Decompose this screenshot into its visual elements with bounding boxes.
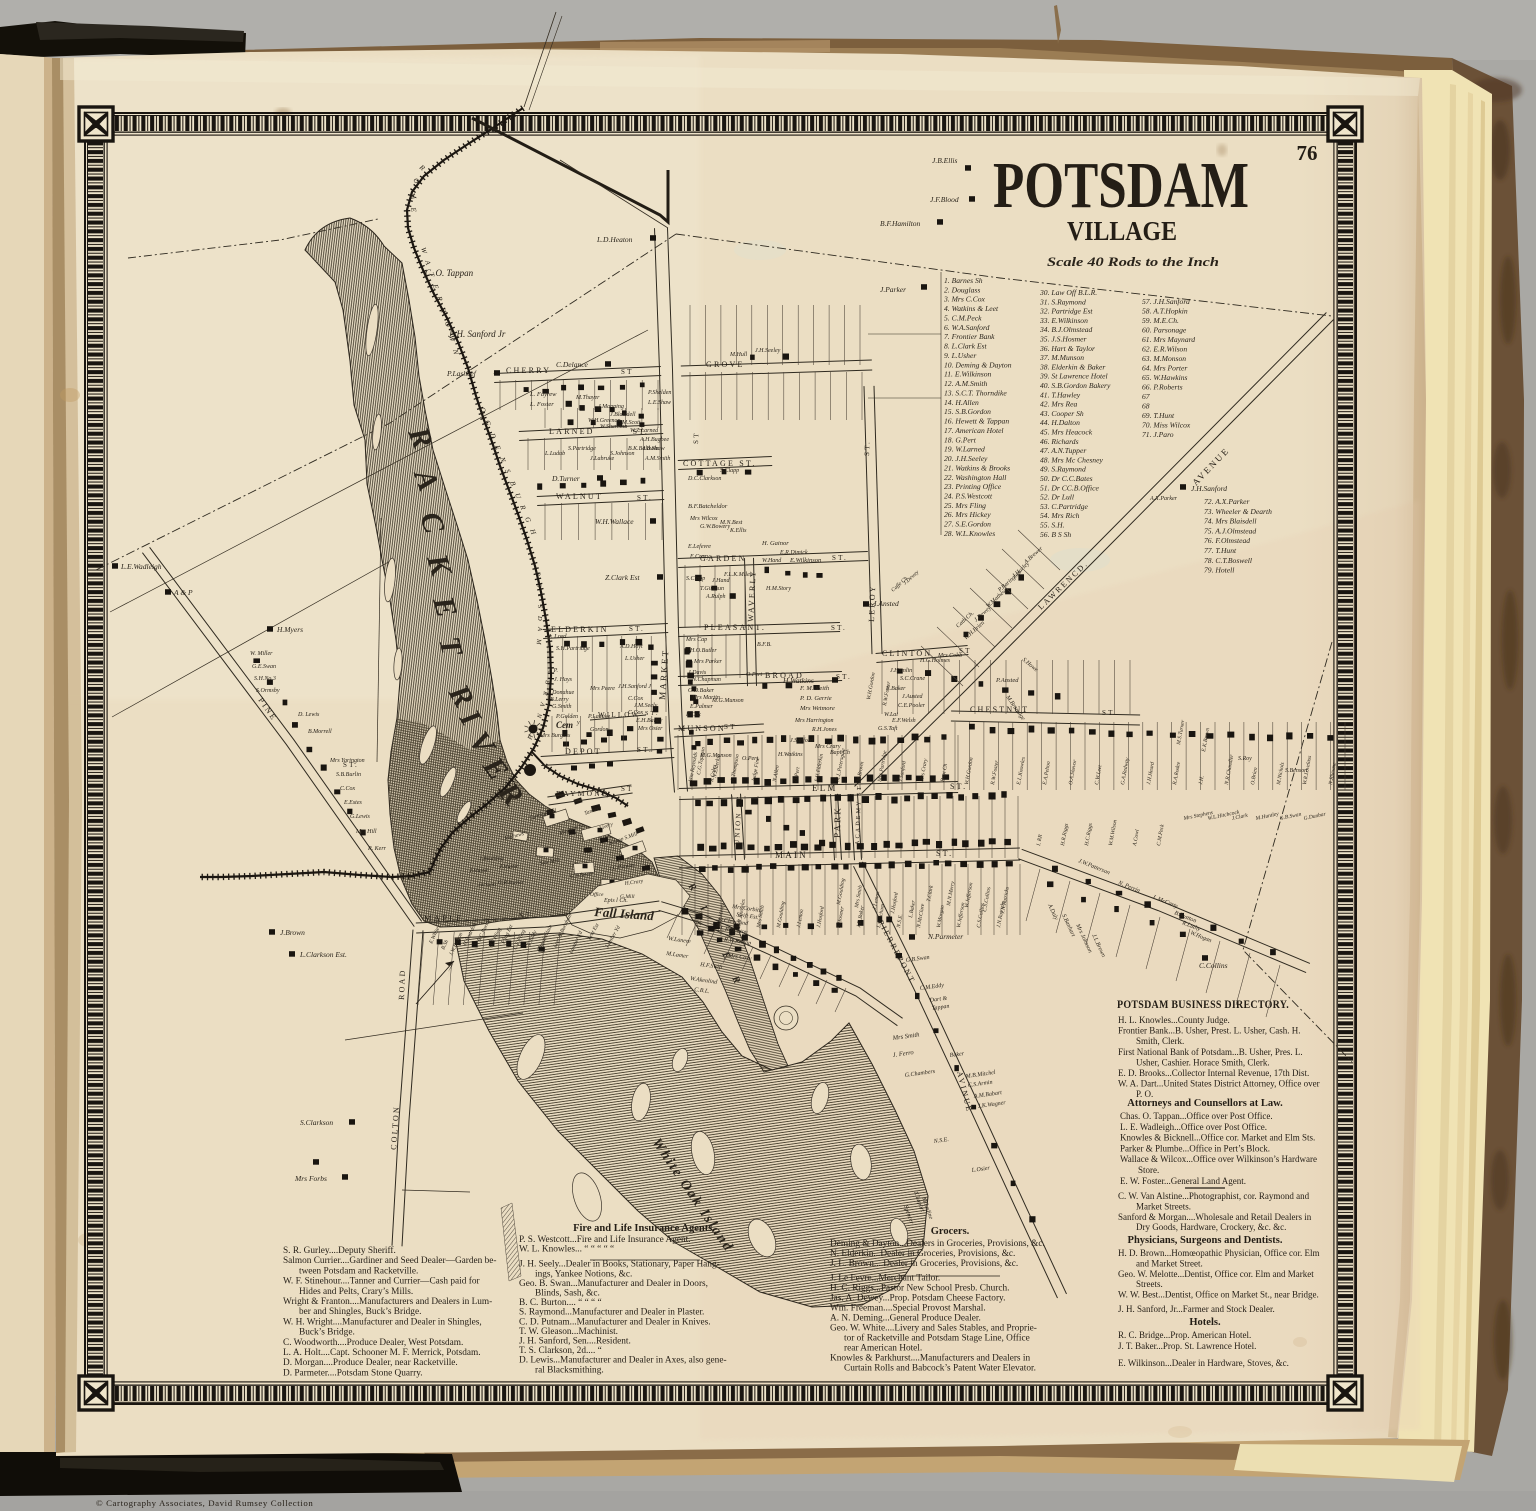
svg-text:B.Lerry: B.Lerry [550,697,569,703]
svg-text:Blinds, Sash, &c.: Blinds, Sash, &c. [535,1289,600,1299]
svg-text:54. Mrs Rich: 54. Mrs Rich [1040,511,1080,520]
svg-text:Mrs Burgess: Mrs Burgess [539,733,571,739]
svg-text:22. Washington Hall: 22. Washington Hall [944,473,1006,482]
svg-text:R. C. Bridge...Prop. American: R. C. Bridge...Prop. American Hotel. [1118,1330,1251,1340]
svg-text:E. D. Brooks...Collector Inter: E. D. Brooks...Collector Internal Revenu… [1118,1068,1309,1078]
svg-text:S. Raymond...Manufacturer and: S. Raymond...Manufacturer and Dealer in … [519,1307,704,1318]
svg-text:M.G.Munson: M.G.Munson [711,698,744,704]
svg-text:72. A.X.Parker: 72. A.X.Parker [1204,497,1249,506]
svg-text:H.Myers: H.Myers [276,625,303,634]
svg-text:M: M [535,638,542,645]
svg-text:69. T.Hunt: 69. T.Hunt [1142,411,1175,420]
svg-text:E.R.Dimick: E.R.Dimick [779,550,808,556]
svg-text:Jas. A. Dewey...Prop. Potsdam: Jas. A. Dewey...Prop. Potsdam Cheese Fac… [830,1294,1005,1304]
svg-text:CLINTON: CLINTON [882,649,932,658]
svg-text:L.D.Heaton: L.D.Heaton [596,235,633,244]
svg-text:© Cartography Associates, Davi: © Cartography Associates, David Rumsey C… [96,1498,313,1508]
svg-text:S.Ormsby: S.Ormsby [256,688,280,694]
svg-text:B.F.Hamilton: B.F.Hamilton [880,219,921,228]
svg-text:Fire and Life Insurance Agents: Fire and Life Insurance Agents. [573,1223,715,1234]
svg-text:COTTAGE ST.: COTTAGE ST. [683,459,757,468]
svg-text:J. Hays: J. Hays [554,677,573,683]
svg-text:J.Parker: J.Parker [880,285,906,294]
svg-text:E.Estes: E.Estes [343,800,362,806]
svg-text:W.H.Wallace: W.H.Wallace [595,517,634,526]
svg-text:First National Bank of Potsdam: First National Bank of Potsdam...B. Ushe… [1118,1047,1303,1057]
svg-text:B. C. Burton.... “: B. C. Burton.... “ “ “ “ [519,1298,602,1308]
svg-text:CHERRY: CHERRY [506,366,551,375]
svg-text:H. L. Knowles...County Judge.: H. L. Knowles...County Judge. [1118,1015,1230,1025]
svg-text:J.Donahue: J.Donahue [548,690,574,696]
svg-text:S.Clapp: S.Clapp [686,576,705,582]
svg-text:W. H. Wright....Manufacturer a: W. H. Wright....Manufacturer and Dealer … [283,1316,482,1327]
svg-text:M.N.Best: M.N.Best [719,520,743,526]
svg-text:ber and Shingles, Buck’s Bridg: ber and Shingles, Buck’s Bridge. [299,1307,421,1317]
svg-text:S. R. Gurley....Deputy Sheriff: S. R. Gurley....Deputy Sheriff. [283,1245,396,1256]
svg-text:LEROY: LEROY [867,584,877,622]
svg-text:P.Lasheef: P.Lasheef [446,369,477,378]
svg-text:Scale 40 Rods to the Inch: Scale 40 Rods to the Inch [1047,254,1219,269]
svg-text:73. Wheeler & Dearth: 73. Wheeler & Dearth [1204,507,1272,516]
svg-text:21. Watkins & Brooks: 21. Watkins & Brooks [944,463,1010,472]
svg-text:D: D [536,615,543,621]
svg-text:G.E.Swan: G.E.Swan [252,664,276,670]
svg-text:76: 76 [1297,141,1318,165]
svg-text:J.F.Blood: J.F.Blood [930,195,959,204]
svg-text:L.E.Wadleigh: L.E.Wadleigh [120,562,162,571]
svg-text:51. Dr CC.B.Office: 51. Dr CC.B.Office [1040,483,1099,492]
svg-text:48. Mrs Mc Chesney: 48. Mrs Mc Chesney [1040,455,1103,464]
svg-text:C. O. Tappan: C. O. Tappan [425,268,474,278]
svg-text:20. J.H.Seeley: 20. J.H.Seeley [944,454,988,463]
svg-text:79. Hotell: 79. Hotell [1204,566,1234,575]
svg-text:ST: ST [724,723,737,731]
svg-text:Deming & Dayton...Dealers in G: Deming & Dayton...Dealers in Groceries, … [830,1239,1045,1249]
svg-text:P.Shelden: P.Shelden [647,390,671,396]
svg-text:F. M. Keith: F. M. Keith [799,685,829,692]
svg-text:Epis l Ch.: Epis l Ch. [603,898,628,904]
svg-text:Parker & Plumbe...Office in Pe: Parker & Plumbe...Office in Pert’s Block… [1120,1143,1270,1153]
svg-text:S.Partridge: S.Partridge [568,446,596,452]
svg-text:A.D.Hoyt: A.D.Hoyt [619,644,643,650]
svg-text:ST: ST [692,431,700,444]
svg-text:G.Lewis: G.Lewis [350,814,371,820]
svg-text:GROVE: GROVE [706,360,745,369]
svg-text:34. B.J.Olmstead: 34. B.J.Olmstead [1039,325,1093,334]
svg-text:ELM: ELM [812,783,838,793]
svg-text:R.H.Jones: R.H.Jones [811,727,837,733]
svg-text:G.B.Barnes: G.B.Barnes [498,880,524,886]
svg-text:70. Miss Wilcox: 70. Miss Wilcox [1142,421,1191,430]
svg-text:23. Printing Office: 23. Printing Office [944,482,1002,491]
svg-text:Mrs Cobb: Mrs Cobb [937,653,962,659]
svg-text:ST.: ST. [629,625,645,633]
svg-text:Mrs Hill: Mrs Hill [355,829,377,835]
svg-text:18. G.Pert: 18. G.Pert [944,435,977,444]
svg-text:28. W.L.Knowles: 28. W.L.Knowles [944,529,995,538]
svg-text:53. C.Partridge: 53. C.Partridge [1040,502,1089,511]
svg-text:rear American Hotel.: rear American Hotel. [844,1344,922,1354]
svg-text:P.Laduke: P.Laduke [587,714,610,720]
svg-text:MAIN: MAIN [775,850,808,860]
svg-text:Dry Goods, Hardware, Crockery,: Dry Goods, Hardware, Crockery, &c. &c. [1136,1222,1286,1232]
svg-text:J. P.: J. P. [548,668,558,674]
svg-text:P. D. Gerrie: P. D. Gerrie [799,695,832,702]
svg-text:S.Roy: S.Roy [1238,756,1252,762]
svg-text:PARK: PARK [832,806,843,838]
svg-text:Streets.: Streets. [1136,1279,1163,1289]
svg-text:ST: ST [621,785,634,793]
svg-text:P. S. Westcott...Fire and Life: P. S. Westcott...Fire and Life Insurance… [519,1234,691,1245]
svg-text:J.Sanford: J.Sanford [790,737,814,744]
svg-text:31. S.Raymond: 31. S.Raymond [1039,297,1086,306]
svg-text:D.Turner: D.Turner [551,474,580,483]
svg-text:10. Deming & Dayton: 10. Deming & Dayton [944,360,1012,369]
svg-text:H.Watkins: H.Watkins [777,752,803,758]
svg-text:Grocers.: Grocers. [931,1226,970,1237]
svg-text:POTSDAM: POTSDAM [993,149,1249,222]
svg-text:55. S.H.: 55. S.H. [1040,521,1065,530]
svg-text:C.Delance: C.Delance [556,360,589,369]
svg-text:Mrs Peere: Mrs Peere [589,686,615,692]
svg-text:A.H.Bugbee: A.H.Bugbee [639,437,669,443]
svg-text:W. W. Best...Dentist, Office o: W. W. Best...Dentist, Office on Market S… [1118,1290,1319,1300]
svg-text:Attorneys and Counsellors at L: Attorneys and Counsellors at Law. [1127,1098,1283,1109]
svg-text:H.O.Butler: H.O.Butler [689,648,717,654]
svg-text:ROAD: ROAD [397,968,407,1000]
svg-text:42. Mrs Rea: 42. Mrs Rea [1040,400,1078,409]
svg-text:O.D.Baker: O.D.Baker [688,688,715,694]
svg-text:F.L.K.Miles: F.L.K.Miles [723,572,753,578]
svg-text:14. H.Allen: 14. H.Allen [944,398,979,407]
svg-text:L. Foster: L. Foster [529,401,554,408]
svg-text:W. A. Dart...United States Dis: W. A. Dart...United States District Atto… [1118,1079,1320,1089]
svg-text:40. S.B.Gordon Bakery: 40. S.B.Gordon Bakery [1040,381,1111,390]
svg-text:MUNSON: MUNSON [678,724,726,733]
svg-text:I.Mutter: I.Mutter [499,864,519,870]
svg-text:43. Cooper Sh: 43. Cooper Sh [1040,409,1084,418]
svg-text:19. W.Larned: 19. W.Larned [944,445,985,454]
svg-text:9. L.Usher: 9. L.Usher [944,351,976,360]
svg-text:41. T.Hawley: 41. T.Hawley [1040,390,1081,399]
svg-text:E. W. Foster...General Land Ag: E. W. Foster...General Land Agent. [1120,1176,1246,1186]
svg-text:ST.: ST. [637,494,653,502]
svg-text:Wallace & Wilcox...Office ov: Wallace & Wilcox...Office over Wilkinson… [1120,1154,1317,1164]
svg-text:W.H.Greenan: W.H.Greenan [588,418,621,424]
svg-text:Geo. B. Swan...Manufacturer: Geo. B. Swan...Manufacturer and Dealer i… [519,1278,708,1289]
svg-text:A. N. Deming...General Produce: A. N. Deming...General Produce Dealer. [830,1314,981,1324]
svg-text:WALNUT: WALNUT [556,492,603,501]
svg-text:Store.: Store. [1138,1165,1159,1175]
svg-text:L.Usher: L.Usher [624,656,645,662]
svg-text:L. Fayrew: L. Fayrew [529,391,557,398]
svg-text:7. Frontier Bank: 7. Frontier Bank [944,332,995,341]
svg-text:Wright & Franton....Manufactur: Wright & Franton....Manufacturers and De… [283,1296,492,1307]
svg-text:W.Z.Larned: W.Z.Larned [630,428,659,434]
svg-text:E. Wilkinson...Dealer in Hardw: E. Wilkinson...Dealer in Hardware, Stove… [1118,1358,1289,1368]
svg-text:VILLAGE: VILLAGE [1067,216,1177,246]
svg-text:68: 68 [1142,402,1150,411]
svg-text:P.Golden: P.Golden [555,714,578,720]
svg-text:36. Hart & Taylor: 36. Hart & Taylor [1039,344,1095,353]
svg-text:P.Ansted: P.Ansted [995,677,1019,684]
svg-text:33. E.Wilkinson: 33. E.Wilkinson [1039,316,1088,325]
svg-text:Mrs Wilcox: Mrs Wilcox [689,516,718,522]
svg-text:A & P: A & P [173,588,193,597]
svg-text:D.C.Clarkson: D.C.Clarkson [687,476,721,482]
svg-text:ST: ST [621,368,634,376]
svg-text:C.E.Pooler: C.E.Pooler [898,703,926,709]
svg-text:11. E.Wilkinson: 11. E.Wilkinson [944,370,992,379]
svg-text:3. Mrs C.Cox: 3. Mrs C.Cox [943,295,986,304]
svg-text:D. Lewis: D. Lewis [297,712,320,718]
svg-text:T.Girusun: T.Girusun [700,586,724,592]
svg-text:L.Ludub: L.Ludub [544,451,565,457]
svg-text:O: O [535,583,542,588]
svg-text:67: 67 [1142,392,1151,401]
svg-text:L. E. Wadleigh...Office over: L. E. Wadleigh...Office over Post Office… [1120,1122,1267,1132]
svg-text:RAYMOND: RAYMOND [556,789,609,798]
svg-text:2. Douglass: 2. Douglass [944,285,980,294]
svg-text:Mrs Forbs: Mrs Forbs [294,1174,327,1183]
svg-text:D. Morgan....Produce Dealer, n: D. Morgan....Produce Dealer, near Racket… [283,1358,458,1368]
svg-text:76. F.Olmstead: 76. F.Olmstead [1204,536,1250,545]
svg-text:J. L. Brown....Dealer in Groce: J. L. Brown....Dealer in Groceries, Prov… [830,1259,1018,1269]
svg-text:S.H.No 3: S.H.No 3 [254,676,276,682]
svg-text:5. C.M.Peck: 5. C.M.Peck [944,314,982,323]
svg-text:A.Rulph: A.Rulph [705,594,726,600]
svg-text:K.Ellis: K.Ellis [729,528,747,534]
svg-text:35. J.S.Hosmer: 35. J.S.Hosmer [1039,335,1086,344]
svg-text:ST: ST [1102,709,1115,717]
svg-text:T: T [536,594,543,598]
svg-text:66. P.Roberts: 66. P.Roberts [1142,383,1183,392]
svg-text:J.M.Seely: J.M.Seely [634,703,658,709]
svg-text:Wm. Freeman....Special Provost: Wm. Freeman....Special Provost Marshal. [830,1304,986,1314]
svg-text:32. Partridge Est: 32. Partridge Est [1039,307,1093,316]
svg-text:65. W.Hawkins: 65. W.Hawkins [1142,373,1188,382]
svg-text:52. Dr Lull: 52. Dr Lull [1040,493,1074,502]
svg-text:17. American Hotel: 17. American Hotel [944,426,1004,435]
svg-text:B.F.B.: B.F.B. [757,642,772,648]
svg-text:T. W. Gleason...Machinist.: T. W. Gleason...Machinist. [519,1327,618,1337]
svg-text:L.E.Shaw: L.E.Shaw [647,400,671,406]
svg-text:38. Elderkin & Baker: 38. Elderkin & Baker [1039,362,1105,371]
svg-text:S.B.Burlin: S.B.Burlin [336,772,361,778]
svg-text:G.S.Taft: G.S.Taft [878,725,898,732]
svg-text:25. Mrs Fling: 25. Mrs Fling [944,501,986,510]
svg-text:I.B.Shaw: I.B.Shaw [642,446,665,452]
svg-text:47. A.N.Tupper: 47. A.N.Tupper [1040,446,1086,455]
svg-text:W. Miller: W. Miller [250,651,273,657]
svg-text:27. S.E.Gordon: 27. S.E.Gordon [944,520,991,529]
svg-text:S.H.Partridge: S.H.Partridge [556,646,590,652]
svg-text:J.Manning: J.Manning [598,404,624,410]
svg-text:DEPOT: DEPOT [565,747,602,756]
svg-text:W. F. Stinehour....Tanner and: W. F. Stinehour....Tanner and Currier—Ca… [283,1276,480,1287]
svg-text:Hotels.: Hotels. [1189,1317,1221,1328]
svg-text:Knowles & Bicknell...Office co: Knowles & Bicknell...Office cor. Market … [1120,1133,1315,1143]
svg-text:J. T. Baker...Prop. St. Lawren: J. T. Baker...Prop. St. Lawrence Hotel. [1118,1341,1256,1351]
svg-text:ings, Yankee Notions, &c.: ings, Yankee Notions, &c. [535,1269,632,1279]
svg-text:J.Brown: J.Brown [280,928,305,937]
svg-text:W.Hand: W.Hand [762,558,782,564]
svg-text:G.B.S.: G.B.S. [500,796,516,802]
svg-text:L. A. Holt....Capt. Schooner M: L. A. Holt....Capt. Schooner M. F. Merri… [283,1348,481,1358]
svg-text:E.Cox: E.Cox [685,712,701,718]
svg-text:Jackson: Jackson [478,882,496,888]
svg-text:Curtain Rolls and Babcock’s Pa: Curtain Rolls and Babcock’s Patent Water… [844,1364,1036,1374]
svg-text:A.X.Parker: A.X.Parker [1149,496,1178,502]
svg-text:Salmon Currier....Gardiner and: Salmon Currier....Gardiner and Seed Deal… [283,1256,497,1266]
svg-text:4. Watkins & Leet: 4. Watkins & Leet [944,304,999,313]
svg-text:58. A.T.Hopkin: 58. A.T.Hopkin [1142,307,1188,316]
svg-text:Knowles & Parkhurst....Manufac: Knowles & Parkhurst....Manufacturers and… [830,1353,1030,1364]
svg-text:S.Clapp: S.Clapp [720,468,739,474]
svg-text:1. Barnes Sh: 1. Barnes Sh [944,276,983,285]
svg-text:Mrs Cap: Mrs Cap [685,637,707,643]
svg-text:S.Clarkson: S.Clarkson [300,1118,333,1127]
svg-text:44. H.Dalton: 44. H.Dalton [1040,418,1080,427]
svg-text:Cem: Cem [556,720,573,730]
svg-text:C.Cox: C.Cox [628,710,644,716]
svg-text:24. P.S.Westcott: 24. P.S.Westcott [944,492,993,501]
svg-text:H. Gainor: H. Gainor [761,540,789,547]
svg-text:N. Elderkin...Dealer in Grocer: N. Elderkin...Dealer in Groceries, Provi… [830,1249,1015,1259]
svg-text:Mrs Yarington: Mrs Yarington [329,758,365,764]
svg-text:J. Lord: J. Lord [548,633,567,640]
svg-text:J. Le Fevre...Merchant Tailor.: J. Le Fevre...Merchant Tailor. [830,1274,940,1284]
svg-text:J.Davis: J.Davis [688,670,707,676]
svg-text:W.Sherman: W.Sherman [600,424,627,430]
svg-text:I.Ansted: I.Ansted [873,599,899,608]
svg-text:Market Streets.: Market Streets. [1136,1201,1191,1211]
svg-text:16. Hewett & Tappan: 16. Hewett & Tappan [944,417,1009,426]
svg-text:D. Lewis...Manufacturer and De: D. Lewis...Manufacturer and Dealer in Ax… [519,1355,727,1366]
svg-text:13. S.C.T. Thorndike: 13. S.C.T. Thorndike [944,388,1007,397]
svg-text:E.Wilkinson: E.Wilkinson [789,557,821,564]
svg-text:C. D. Putnam...Manufacturer an: C. D. Putnam...Manufacturer and Dealer i… [519,1316,711,1327]
svg-text:J.B.Ellis: J.B.Ellis [932,156,957,165]
svg-text:E.H.Bailey: E.H.Bailey [635,718,663,724]
svg-text:E.Palmer: E.Palmer [689,704,713,710]
svg-text:Geo. W. White....Livery and Sa: Geo. W. White....Livery and Sales Stable… [830,1324,1037,1334]
svg-text:Z.Clark Est: Z.Clark Est [605,573,641,582]
svg-text:ST.: ST. [831,624,847,632]
svg-text:56. B S Sh: 56. B S Sh [1040,530,1071,539]
svg-text:74. Mrs Blaisdell: 74. Mrs Blaisdell [1204,517,1257,526]
svg-text:ST.: ST. [836,673,852,681]
svg-text:W. L. Knowles... “ “: W. L. Knowles... “ “ “ “ “ [519,1245,614,1255]
svg-text:C.Cox: C.Cox [628,696,644,702]
svg-text:Chas. O. Tappan...Office over: Chas. O. Tappan...Office over Post Offic… [1120,1111,1273,1121]
svg-text:30. Law Off B.L.R.: 30. Law Off B.L.R. [1039,288,1097,297]
svg-text:ral Blacksmithing.: ral Blacksmithing. [535,1365,604,1375]
svg-text:J. H. Sanford Jr: J. H. Sanford Jr [448,329,506,339]
svg-text:ST: ST [519,911,533,920]
svg-text:H. D. Brown...Homœopathic Phy: H. D. Brown...Homœopathic Physician, Off… [1118,1248,1320,1258]
svg-text:Mrs Harrington: Mrs Harrington [794,718,834,724]
svg-text:Buck’s Bridge.: Buck’s Bridge. [299,1328,355,1338]
svg-text:I.Mutter: I.Mutter [469,868,489,874]
svg-text:LARNED: LARNED [549,427,595,436]
svg-text:H.M.Story: H.M.Story [765,586,791,592]
svg-text:R. Kerr: R. Kerr [367,846,387,852]
svg-text:ST.: ST. [936,849,953,858]
svg-text:PLEASANT.: PLEASANT. [704,623,766,632]
svg-text:8. L.Clark Est: 8. L.Clark Est [944,342,988,351]
svg-text:E.F.Welsh: E.F.Welsh [891,718,916,724]
svg-text:BROAD: BROAD [765,671,804,680]
svg-text:O.Pert: O.Pert [746,672,762,678]
svg-text:Geo. W. Melotte...Dentist, Off: Geo. W. Melotte...Dentist, Office cor. E… [1118,1269,1314,1279]
svg-text:Hides and Pelts, Crary’s Mills: Hides and Pelts, Crary’s Mills. [299,1287,413,1297]
svg-text:Physicians, Surgeons and Denti: Physicians, Surgeons and Dentists. [1128,1235,1283,1246]
svg-text:POTSDAM BUSINESS DIRECTORY.: POTSDAM BUSINESS DIRECTORY. [1117,999,1289,1011]
svg-text:E.Lefevre: E.Lefevre [687,543,711,550]
svg-text:15. S.B.Gordon: 15. S.B.Gordon [944,407,991,416]
svg-text:tor of Racketville and Potsdam: tor of Racketville and Potsdam Stage Lin… [844,1333,1030,1344]
svg-text:M.Hull: M.Hull [729,352,747,358]
svg-text:78. C.T.Boswell: 78. C.T.Boswell [1204,556,1252,565]
svg-text:39. St Lawrence Hotel: 39. St Lawrence Hotel [1039,372,1108,381]
svg-text:12. A.M.Smith: 12. A.M.Smith [944,379,988,388]
svg-text:Office: Office [590,891,604,898]
svg-text:57. J.H.Sanford: 57. J.H.Sanford [1142,297,1190,306]
svg-text:26. Mrs Hickey: 26. Mrs Hickey [944,510,991,519]
svg-text:y: y [576,720,580,726]
svg-text:6. W.A.Sanford: 6. W.A.Sanford [944,323,990,332]
svg-text:62. E.R.Wilson: 62. E.R.Wilson [1142,345,1187,354]
svg-text:Usher, Cashier. Horace Smith: Usher, Cashier. Horace Smith, Clerk. [1136,1057,1270,1067]
svg-text:46. Richards: 46. Richards [1040,437,1079,446]
svg-text:71. J.Paro: 71. J.Paro [1142,430,1174,439]
svg-text:J. H. Seely...Dealer in Books,: J. H. Seely...Dealer in Books, Stationar… [519,1260,720,1270]
svg-text:A.M.Smith: A.M.Smith [644,456,670,462]
svg-text:64. Mrs Porter: 64. Mrs Porter [1142,364,1187,373]
svg-text:J.Hamlin: J.Hamlin [890,668,912,674]
svg-text:45. Mrs Heacock: 45. Mrs Heacock [1040,428,1093,437]
svg-text:ST.: ST. [863,440,872,456]
svg-text:J. H. Sanford, Sen....Resident: J. H. Sanford, Sen....Resident. [519,1336,631,1347]
svg-text:50. Dr C.C.Bates: 50. Dr C.C.Bates [1040,474,1093,483]
svg-text:P: P [534,571,541,576]
svg-text:C.Cox: C.Cox [340,786,356,792]
svg-text:60. Parsonage: 60. Parsonage [1142,326,1187,335]
svg-text:49. S.Raymond: 49. S.Raymond [1040,465,1086,474]
svg-text:H. C. Riggs...Pastor New Schoo: H. C. Riggs...Pastor New School Presb. C… [830,1284,1009,1294]
svg-text:E.Crary: E.Crary [689,554,710,560]
svg-text:37. M.Munson: 37. M.Munson [1039,353,1084,362]
svg-text:I.Baulding: I.Baulding [479,856,504,862]
svg-text:Mrs Wetmore: Mrs Wetmore [799,705,835,712]
svg-text:MAPLE: MAPLE [424,913,464,923]
svg-text:J.H.Sanford J: J.H.Sanford J [618,683,651,690]
svg-text:61. Mrs Maynard: 61. Mrs Maynard [1142,335,1195,344]
svg-text:Gordon: Gordon [590,727,608,733]
svg-text:C. Woodworth....Produce Dealer: C. Woodworth....Produce Dealer, West Pot… [283,1338,463,1348]
svg-text:Smith, Clerk.: Smith, Clerk. [1136,1036,1184,1046]
svg-text:Sanford & Morgan....Wholesal: Sanford & Morgan....Wholesale and Retail… [1118,1212,1312,1222]
svg-text:S.C.Crane: S.C.Crane [900,676,925,682]
svg-text:77. T.Hunt: 77. T.Hunt [1204,546,1237,555]
svg-text:tween Potsdam and Racketville.: tween Potsdam and Racketville. [299,1266,418,1276]
svg-text:ST.: ST. [645,711,660,717]
svg-text:Frontier Bank...B. Usher, Pres: Frontier Bank...B. Usher, Prest. L. Ushe… [1118,1026,1301,1036]
svg-text:N.Chapman: N.Chapman [691,677,721,683]
svg-text:Mrs Parker: Mrs Parker [693,659,722,665]
svg-text:and Market Street.: and Market Street. [1136,1258,1203,1268]
